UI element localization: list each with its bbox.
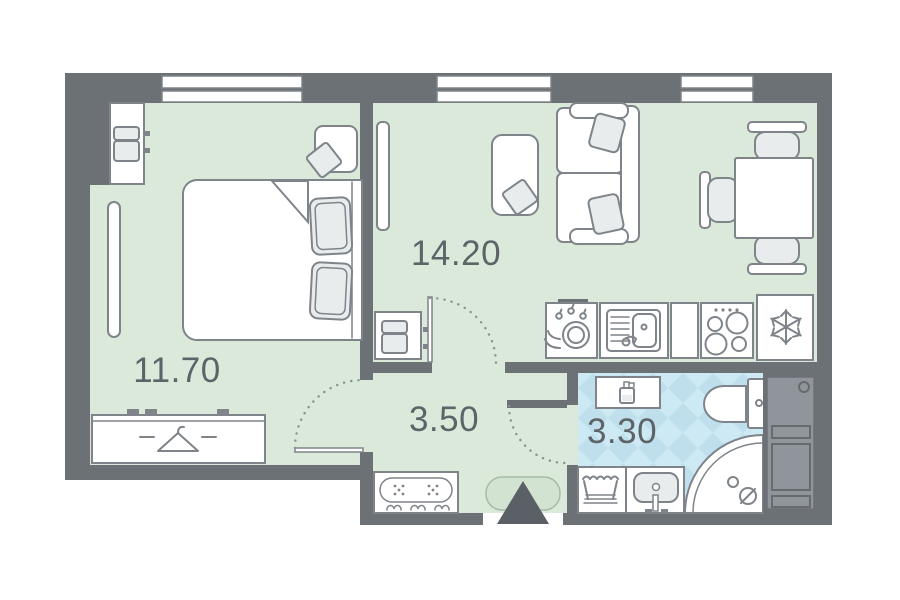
chair-seat: [382, 334, 407, 353]
sofa: [557, 103, 639, 244]
utility-shaft: [763, 373, 817, 513]
living-kitchen-area-label: 14.20: [411, 234, 501, 274]
living-room-desk: [375, 312, 428, 359]
bathroom-shelf: [596, 377, 660, 408]
chair-seat: [114, 141, 139, 161]
dining-table: [735, 158, 813, 238]
bed: [183, 180, 362, 340]
chair-backrest: [748, 122, 806, 132]
chair-seat: [755, 236, 799, 264]
chair-seat: [755, 132, 799, 160]
entrance: [486, 477, 560, 524]
bedroom-desk: [110, 103, 150, 184]
floor-plan: 11.70 14.20 3.50 3.30: [0, 0, 900, 600]
laundry-basket: [578, 467, 626, 513]
dishwasher: [546, 303, 597, 358]
hallway-area-label: 3.50: [409, 400, 479, 440]
chair-seat: [708, 178, 738, 222]
bedroom-mirror: [108, 202, 120, 337]
coffee-table: [492, 135, 538, 215]
hallway-bench: [374, 472, 458, 513]
sofa-pillow: [588, 193, 625, 234]
floor-plan-drawing: [0, 0, 900, 600]
tv-panel: [377, 122, 389, 230]
chair-backrest: [382, 321, 407, 333]
counter-section: [671, 303, 698, 358]
bedroom-area-label: 11.70: [133, 351, 221, 391]
washbasin: [626, 467, 684, 513]
chair-backrest: [114, 127, 139, 140]
wardrobe: [92, 409, 265, 463]
kitchen-counter: [545, 295, 813, 360]
bathroom-area-label: 3.30: [587, 412, 657, 452]
bed-pillow: [310, 262, 353, 320]
chair-backrest: [748, 264, 806, 274]
bed-pillow: [310, 197, 353, 255]
